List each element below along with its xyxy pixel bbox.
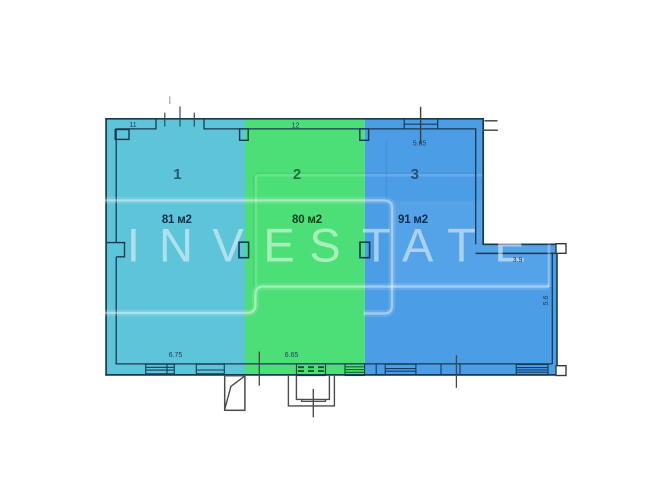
svg-text:91 м2: 91 м2: [398, 214, 428, 226]
svg-text:12: 12: [292, 123, 300, 130]
svg-text:V: V: [212, 218, 244, 271]
svg-text:80 м2: 80 м2: [292, 214, 322, 226]
svg-text:2: 2: [293, 166, 301, 183]
svg-text:6.65: 6.65: [285, 352, 299, 359]
svg-text:T: T: [447, 218, 476, 271]
svg-text:6.75: 6.75: [169, 352, 183, 359]
svg-text:5.6: 5.6: [543, 296, 550, 306]
svg-text:S: S: [309, 218, 340, 271]
svg-text:81 м2: 81 м2: [162, 214, 192, 226]
svg-text:E: E: [263, 218, 294, 271]
svg-text:3.9: 3.9: [513, 257, 523, 264]
svg-text:T: T: [362, 218, 391, 271]
svg-text:11: 11: [129, 122, 136, 129]
svg-text:N: N: [159, 218, 193, 271]
svg-text:1: 1: [173, 166, 181, 183]
svg-text:I: I: [127, 218, 140, 271]
svg-text:3: 3: [411, 166, 419, 183]
svg-text:A: A: [402, 218, 434, 271]
svg-text:5.65: 5.65: [413, 141, 427, 148]
